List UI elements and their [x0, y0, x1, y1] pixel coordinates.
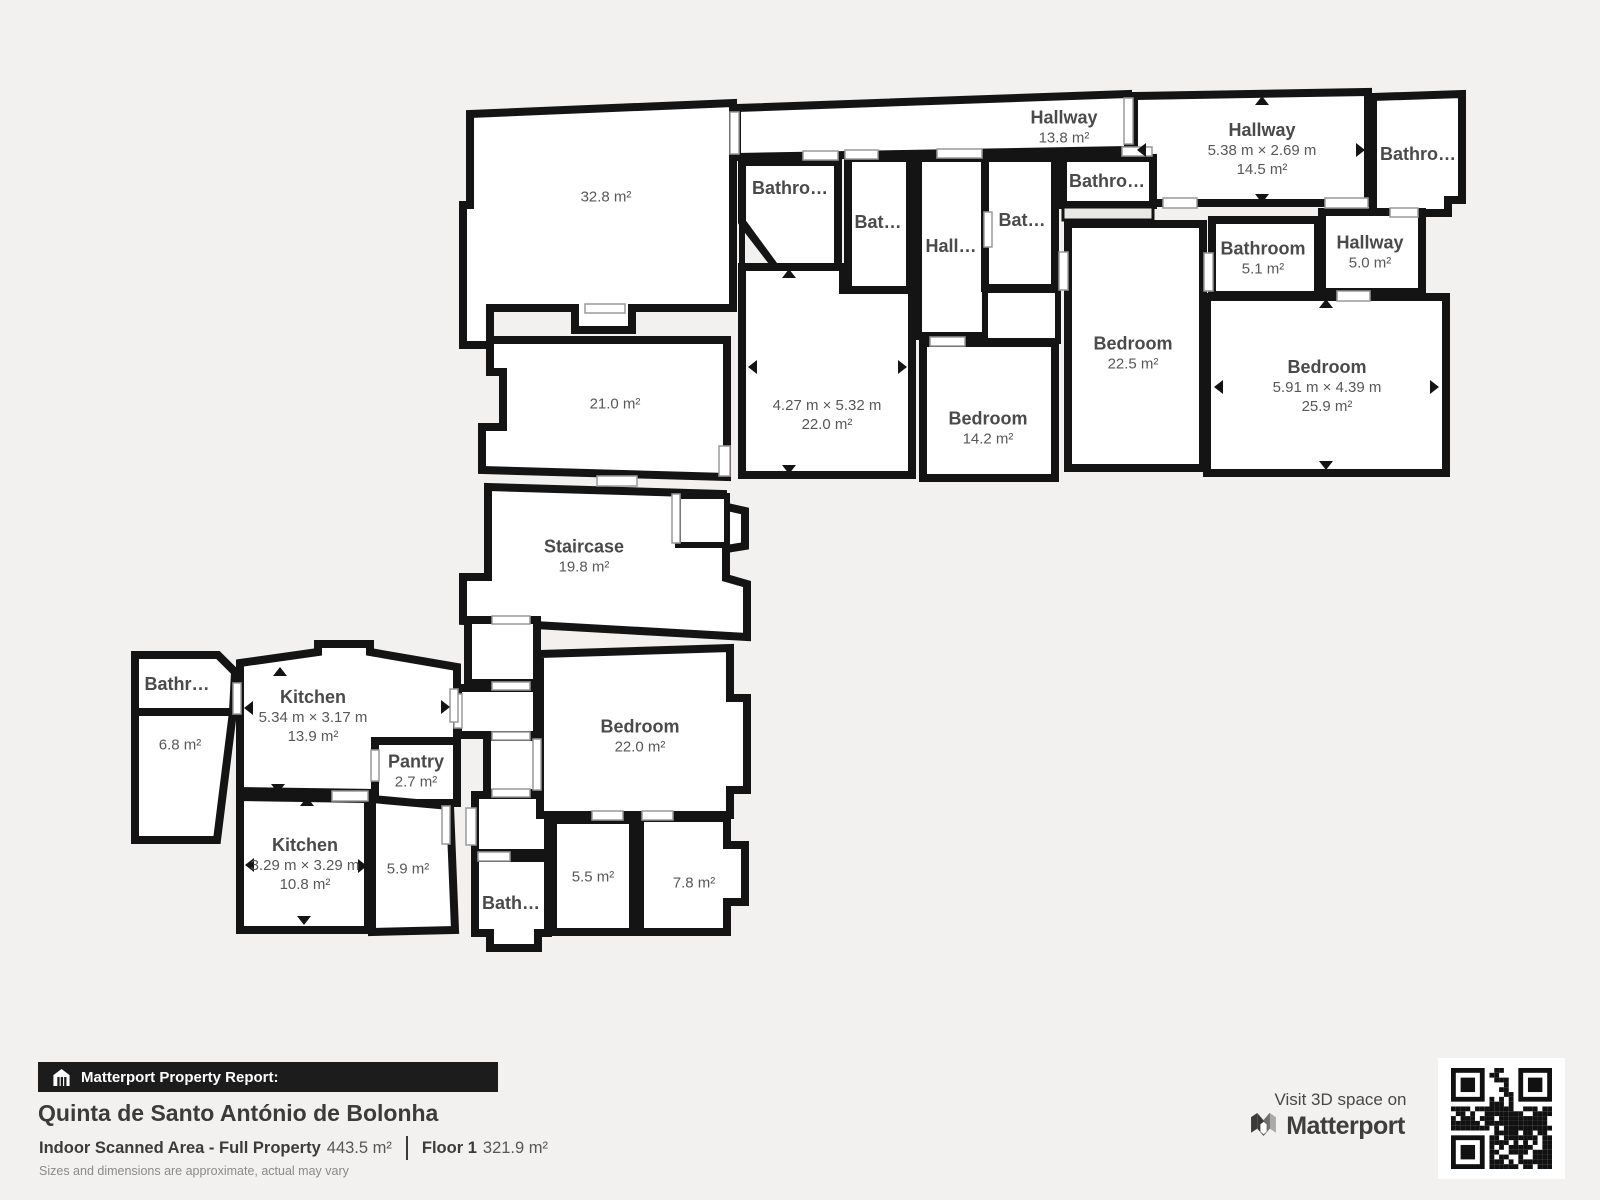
room-label-5-9: 5.9 m²: [387, 860, 430, 879]
room-label-kitchen-b: Kitchen 3.29 m × 3.29 m 10.8 m²: [251, 834, 360, 894]
room-label-hallway-a: Hallway 13.8 m²: [1030, 107, 1097, 148]
room-label-bedroom-25-9: Bedroom 5.91 m × 4.39 m 25.9 m²: [1273, 356, 1382, 416]
room-label-bath-small: Bath…: [482, 892, 540, 914]
visit-3d-text: Visit 3D space on: [1248, 1090, 1433, 1110]
room-label-6-8: 6.8 m²: [159, 736, 202, 755]
room-shape-22-0a: [742, 267, 912, 475]
room-label-bathroom-m3: Bat…: [998, 209, 1045, 231]
room-label-kitchen-a: Kitchen 5.34 m × 3.17 m 13.9 m²: [259, 686, 368, 746]
room-label-22-0a: 4.27 m × 5.32 m 22.0 m²: [773, 396, 882, 434]
property-name: Quinta de Santo António de Bolonha: [38, 1100, 438, 1127]
report-title-bar: Matterport Property Report:: [38, 1062, 498, 1092]
room-label-bedroom-22-0b: Bedroom 22.0 m²: [600, 716, 679, 757]
building-icon: [52, 1068, 71, 1087]
room-label-bedroom-14-2: Bedroom 14.2 m²: [948, 408, 1027, 449]
room-label-bathroom-m2: Bat…: [854, 211, 901, 233]
room-shapes: [135, 92, 1462, 948]
room-label-bathroom-5-1: Bathroom 5.1 m²: [1221, 238, 1306, 279]
room-shape-stair-landing: [678, 496, 727, 545]
floor-value: 321.9 m²: [483, 1139, 548, 1158]
room-label-hallway-b: Hallway 5.38 m × 2.69 m 14.5 m²: [1208, 119, 1317, 179]
room-label-5-5: 5.5 m²: [572, 868, 615, 887]
room-label-pantry: Pantry 2.7 m²: [388, 751, 444, 792]
room-shape-vestibule-2: [458, 688, 537, 735]
disclaimer-text: Sizes and dimensions are approximate, ac…: [39, 1164, 349, 1178]
room-shape-6-8: [135, 712, 233, 840]
room-label-32-8: 32.8 m²: [581, 188, 632, 207]
room-label-hallway-5-0: Hallway 5.0 m²: [1336, 232, 1403, 273]
window-band: [1063, 207, 1153, 220]
room-label-21-0: 21.0 m²: [590, 395, 641, 414]
room-label-hall-small: Hall…: [925, 235, 976, 257]
scanned-area-value: 443.5 m²: [327, 1139, 392, 1158]
report-bar-label: Matterport Property Report:: [81, 1069, 279, 1086]
room-label-bedroom-22-5: Bedroom 22.5 m²: [1093, 333, 1172, 374]
room-label-staircase: Staircase 19.8 m²: [544, 536, 624, 577]
matterport-logo-icon: [1249, 1112, 1278, 1141]
floor-label: Floor 1: [422, 1139, 477, 1158]
scanned-area-label: Indoor Scanned Area - Full Property: [39, 1139, 321, 1158]
matterport-logo-text: Matterport: [1286, 1112, 1405, 1141]
area-stats: Indoor Scanned Area - Full Property 443.…: [39, 1136, 548, 1160]
room-shape-vestibule-3: [487, 737, 537, 793]
stats-divider: [406, 1136, 408, 1160]
floorplan-page: Hallway 13.8 m² Hallway 5.38 m × 2.69 m …: [0, 0, 1600, 1200]
room-label-bathroom-tr: Bathro…: [1380, 143, 1456, 165]
room-shape-vestibule-1: [468, 620, 537, 683]
room-shape-hall-corridor: [985, 290, 1058, 341]
room-label-7-8: 7.8 m²: [673, 874, 716, 893]
qr-code: [1438, 1058, 1565, 1179]
matterport-logo: Matterport: [1222, 1112, 1432, 1141]
room-label-bathroom-m4: Bathro…: [1069, 170, 1145, 192]
room-label-bathr-small: Bathr…: [144, 673, 209, 695]
room-label-bathroom-m1: Bathro…: [752, 177, 828, 199]
